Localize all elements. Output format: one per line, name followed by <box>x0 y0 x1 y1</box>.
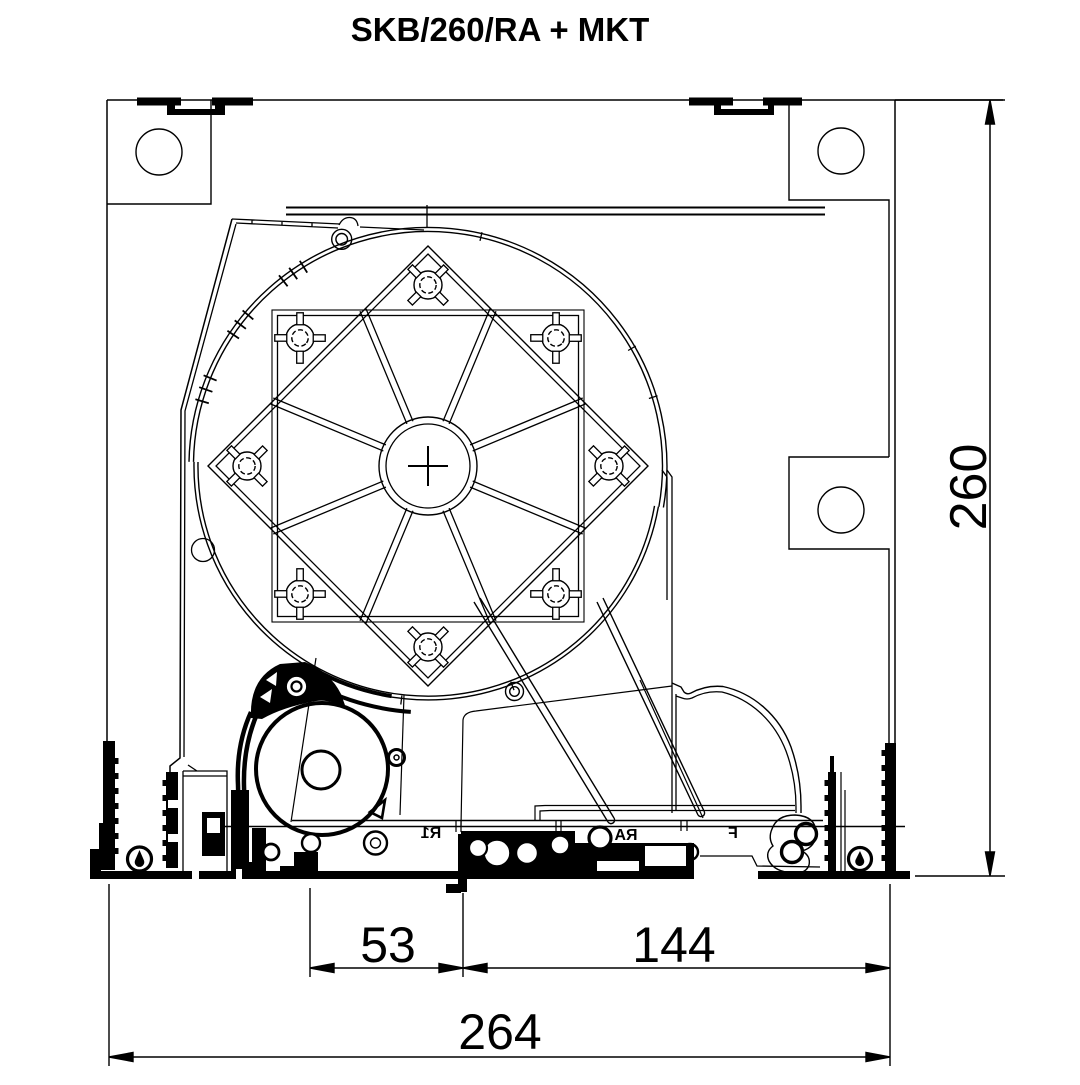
svg-text:53: 53 <box>360 917 416 973</box>
svg-text:144: 144 <box>632 917 715 973</box>
svg-text:264: 264 <box>458 1004 541 1060</box>
svg-text:F: F <box>728 825 738 842</box>
svg-text:RA: RA <box>614 827 638 844</box>
svg-text:SKB/260/RA + MKT: SKB/260/RA + MKT <box>351 11 650 48</box>
svg-text:260: 260 <box>940 444 998 531</box>
svg-text:R1: R1 <box>421 825 442 842</box>
